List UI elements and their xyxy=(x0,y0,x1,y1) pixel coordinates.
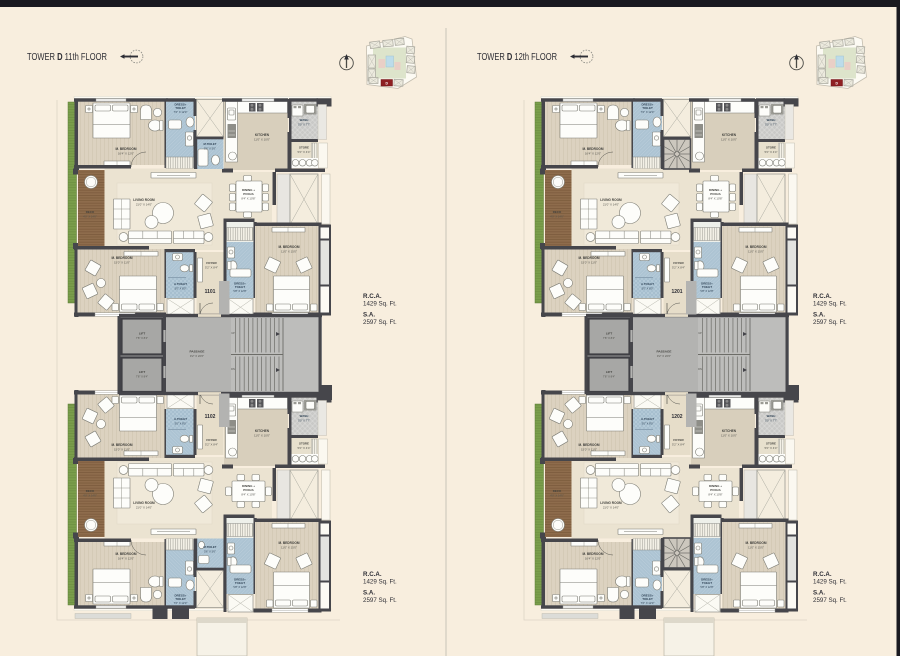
svg-text:M. BEDROOM: M. BEDROOM xyxy=(582,147,603,151)
svg-text:1429 Sq. Ft.: 1429 Sq. Ft. xyxy=(363,579,397,586)
svg-text:STORE: STORE xyxy=(299,146,309,150)
svg-text:LIVING ROOM: LIVING ROOM xyxy=(600,501,622,505)
svg-text:M. BEDROOM: M. BEDROOM xyxy=(111,256,132,260)
svg-text:11'0" X 10'0": 11'0" X 10'0" xyxy=(254,138,270,142)
svg-text:21'0" X 14'0": 21'0" X 14'0" xyxy=(603,203,619,207)
svg-text:5'0" X 4'4": 5'0" X 4'4" xyxy=(764,150,777,154)
svg-text:R.C.A.: R.C.A. xyxy=(363,571,382,578)
svg-text:5'0" X 8'0": 5'0" X 8'0" xyxy=(642,422,654,426)
svg-text:DECK: DECK xyxy=(553,210,562,214)
svg-text:8'4" X 10'8": 8'4" X 10'8" xyxy=(708,196,722,200)
svg-text:A.TOILET: A.TOILET xyxy=(174,417,187,421)
svg-text:7'0" X 12'0": 7'0" X 12'0" xyxy=(174,110,188,114)
svg-text:S.A.: S.A. xyxy=(813,312,825,319)
svg-text:M.TOILET: M.TOILET xyxy=(204,142,217,146)
svg-text:2597 Sq. Ft.: 2597 Sq. Ft. xyxy=(363,597,397,604)
svg-text:DN: DN xyxy=(231,367,235,371)
svg-text:15'0" X 11'0": 15'0" X 11'0" xyxy=(114,261,130,265)
svg-text:FOYER: FOYER xyxy=(206,261,217,265)
svg-text:2597 Sq. Ft.: 2597 Sq. Ft. xyxy=(813,319,847,326)
svg-text:LIFT: LIFT xyxy=(139,332,145,336)
svg-text:M. BEDROOM: M. BEDROOM xyxy=(278,541,299,545)
svg-text:5'0" X 4'4": 5'0" X 4'4" xyxy=(297,150,310,154)
svg-text:LIVING ROOM: LIVING ROOM xyxy=(133,198,155,202)
svg-text:KITCHEN: KITCHEN xyxy=(722,133,737,137)
svg-text:5'0" X 8'0": 5'0" X 8'0" xyxy=(175,422,187,426)
svg-text:M. BEDROOM: M. BEDROOM xyxy=(745,245,766,249)
svg-text:11'0" X 15'0": 11'0" X 15'0" xyxy=(748,250,764,254)
svg-text:S.A.: S.A. xyxy=(813,590,825,597)
svg-text:1102: 1102 xyxy=(205,414,216,420)
svg-text:KITCHEN: KITCHEN xyxy=(255,133,270,137)
svg-text:TOWER D 11th FLOOR: TOWER D 11th FLOOR xyxy=(27,52,107,63)
svg-text:S.A.: S.A. xyxy=(363,590,375,597)
svg-text:FOYER: FOYER xyxy=(673,438,684,442)
svg-text:7'0" X 12'0": 7'0" X 12'0" xyxy=(641,110,655,114)
svg-text:5'0" X 8'0": 5'0" X 8'0" xyxy=(642,287,654,291)
svg-text:5'0" X 8'0": 5'0" X 8'0" xyxy=(175,287,187,291)
svg-text:5'0" X 7'7": 5'0" X 7'7" xyxy=(298,419,310,423)
svg-text:POOJA: POOJA xyxy=(243,192,254,196)
svg-text:8'4" X 10'8": 8'4" X 10'8" xyxy=(241,196,255,200)
svg-text:7'8" X 8'4": 7'8" X 8'4" xyxy=(603,374,615,378)
svg-text:M. BEDROOM: M. BEDROOM xyxy=(745,541,766,545)
svg-text:FOYER: FOYER xyxy=(673,261,684,265)
svg-text:5'0" X 4'4": 5'0" X 4'4" xyxy=(764,446,777,450)
svg-text:STORE: STORE xyxy=(766,146,776,150)
svg-text:9'2" X 20'6": 9'2" X 20'6" xyxy=(190,354,204,358)
svg-text:WASH: WASH xyxy=(300,118,309,122)
svg-text:11'0" X 10'0": 11'0" X 10'0" xyxy=(721,138,737,142)
svg-text:7'0" X 12'0": 7'0" X 12'0" xyxy=(174,601,188,605)
svg-text:A.TOILET: A.TOILET xyxy=(641,282,654,286)
svg-text:FOYER: FOYER xyxy=(206,438,217,442)
svg-text:M. BEDROOM: M. BEDROOM xyxy=(582,552,603,556)
svg-text:21'0" X 14'0": 21'0" X 14'0" xyxy=(603,506,619,510)
svg-text:LIFT: LIFT xyxy=(606,332,612,336)
svg-text:PASSAGE: PASSAGE xyxy=(657,350,672,354)
svg-text:UP: UP xyxy=(231,331,235,335)
svg-text:21'0" X 14'0": 21'0" X 14'0" xyxy=(136,506,152,510)
svg-text:16'4" X 12'0": 16'4" X 12'0" xyxy=(118,557,134,561)
svg-text:KITCHEN: KITCHEN xyxy=(255,429,270,433)
svg-text:15'0" X 11'0": 15'0" X 11'0" xyxy=(581,261,597,265)
svg-text:1429 Sq. Ft.: 1429 Sq. Ft. xyxy=(813,579,847,586)
svg-text:7'0" X 12'0": 7'0" X 12'0" xyxy=(641,601,655,605)
svg-text:R.C.A.: R.C.A. xyxy=(813,293,832,300)
svg-text:DECK: DECK xyxy=(86,210,95,214)
svg-text:16'4" X 12'0": 16'4" X 12'0" xyxy=(585,557,601,561)
svg-text:5'0" X 7'7": 5'0" X 7'7" xyxy=(298,123,310,127)
svg-text:WASH: WASH xyxy=(767,414,776,418)
svg-text:4'0" X 14'0": 4'0" X 14'0" xyxy=(550,215,564,219)
svg-text:UP: UP xyxy=(698,331,702,335)
svg-text:POOJA: POOJA xyxy=(710,488,721,492)
svg-text:A.TOILET: A.TOILET xyxy=(174,282,187,286)
svg-text:7'8" X 8'4": 7'8" X 8'4" xyxy=(136,374,148,378)
svg-text:5'8" X 12'8": 5'8" X 12'8" xyxy=(233,289,246,293)
svg-text:R.C.A.: R.C.A. xyxy=(813,571,832,578)
svg-text:11'0" X 10'0": 11'0" X 10'0" xyxy=(254,434,270,438)
svg-text:LIVING ROOM: LIVING ROOM xyxy=(133,501,155,505)
svg-text:8'4" X 10'8": 8'4" X 10'8" xyxy=(708,492,722,496)
svg-text:1429 Sq. Ft.: 1429 Sq. Ft. xyxy=(813,301,847,308)
svg-text:11'0" X 15'0": 11'0" X 15'0" xyxy=(748,546,764,550)
svg-text:TOILET: TOILET xyxy=(175,597,186,601)
svg-text:5'6" X 5'6": 5'6" X 5'6" xyxy=(204,147,216,151)
svg-text:5'6" X 5'6": 5'6" X 5'6" xyxy=(204,550,216,554)
svg-text:5'0" X 7'7": 5'0" X 7'7" xyxy=(765,123,777,127)
svg-text:TOILET: TOILET xyxy=(702,581,712,585)
svg-text:STORE: STORE xyxy=(766,442,776,446)
svg-text:11'0" X 10'0": 11'0" X 10'0" xyxy=(721,434,737,438)
svg-text:8'4" X 10'8": 8'4" X 10'8" xyxy=(241,492,255,496)
svg-text:4'0" X 14'0": 4'0" X 14'0" xyxy=(83,494,97,498)
svg-text:5'2" X 8'4": 5'2" X 8'4" xyxy=(205,443,218,447)
svg-text:21'0" X 14'0": 21'0" X 14'0" xyxy=(136,203,152,207)
svg-text:M. BEDROOM: M. BEDROOM xyxy=(578,443,599,447)
svg-text:M. BEDROOM: M. BEDROOM xyxy=(111,443,132,447)
svg-text:POOJA: POOJA xyxy=(243,488,254,492)
svg-text:S.A.: S.A. xyxy=(363,312,375,319)
svg-text:TOILET: TOILET xyxy=(642,106,653,110)
svg-text:11'0" X 15'0": 11'0" X 15'0" xyxy=(281,546,297,550)
svg-text:9'2" X 20'6": 9'2" X 20'6" xyxy=(657,354,671,358)
svg-text:1201: 1201 xyxy=(671,289,682,295)
svg-text:M. BEDROOM: M. BEDROOM xyxy=(115,552,136,556)
svg-text:1202: 1202 xyxy=(671,414,682,420)
svg-text:5'0" X 7'7": 5'0" X 7'7" xyxy=(765,419,777,423)
svg-text:WASH: WASH xyxy=(767,118,776,122)
svg-text:KITCHEN: KITCHEN xyxy=(722,429,737,433)
svg-text:DECK: DECK xyxy=(86,489,95,493)
svg-text:M.TOILET: M.TOILET xyxy=(204,545,217,549)
svg-text:R.C.A.: R.C.A. xyxy=(363,293,382,300)
svg-text:2597 Sq. Ft.: 2597 Sq. Ft. xyxy=(363,319,397,326)
svg-text:A.TOILET: A.TOILET xyxy=(641,417,654,421)
svg-text:16'4" X 12'0": 16'4" X 12'0" xyxy=(118,152,134,156)
svg-text:M. BEDROOM: M. BEDROOM xyxy=(115,147,136,151)
svg-text:TOILET: TOILET xyxy=(175,106,186,110)
svg-text:2597 Sq. Ft.: 2597 Sq. Ft. xyxy=(813,597,847,604)
svg-text:5'2" X 8'4": 5'2" X 8'4" xyxy=(672,443,685,447)
svg-text:5'8" X 12'8": 5'8" X 12'8" xyxy=(700,585,713,589)
svg-text:15'0" X 11'0": 15'0" X 11'0" xyxy=(581,448,597,452)
svg-text:4'0" X 14'0": 4'0" X 14'0" xyxy=(550,494,564,498)
svg-text:5'2" X 8'4": 5'2" X 8'4" xyxy=(672,266,685,270)
svg-text:LIFT: LIFT xyxy=(139,370,145,374)
svg-text:7'8" X 8'4": 7'8" X 8'4" xyxy=(136,336,148,340)
svg-text:TOILET: TOILET xyxy=(642,597,653,601)
svg-text:LIVING ROOM: LIVING ROOM xyxy=(600,198,622,202)
svg-text:5'8" X 12'8": 5'8" X 12'8" xyxy=(700,289,713,293)
svg-text:16'4" X 12'0": 16'4" X 12'0" xyxy=(585,152,601,156)
svg-text:1101: 1101 xyxy=(205,289,216,295)
svg-text:STORE: STORE xyxy=(299,442,309,446)
svg-text:5'2" X 8'4": 5'2" X 8'4" xyxy=(205,266,218,270)
svg-text:POOJA: POOJA xyxy=(710,192,721,196)
svg-text:DECK: DECK xyxy=(553,489,562,493)
svg-text:PASSAGE: PASSAGE xyxy=(190,350,205,354)
svg-text:TOILET: TOILET xyxy=(235,285,245,289)
svg-text:M. BEDROOM: M. BEDROOM xyxy=(578,256,599,260)
svg-text:WASH: WASH xyxy=(300,414,309,418)
svg-text:TOILET: TOILET xyxy=(235,581,245,585)
svg-text:TOWER D 12th FLOOR: TOWER D 12th FLOOR xyxy=(477,52,557,63)
svg-text:15'0" X 11'0": 15'0" X 11'0" xyxy=(114,448,130,452)
svg-text:7'8" X 8'4": 7'8" X 8'4" xyxy=(603,336,615,340)
svg-text:DN: DN xyxy=(698,367,702,371)
svg-text:LIFT: LIFT xyxy=(606,370,612,374)
svg-text:M. BEDROOM: M. BEDROOM xyxy=(278,245,299,249)
svg-text:11'0" X 15'0": 11'0" X 15'0" xyxy=(281,250,297,254)
svg-text:TOILET: TOILET xyxy=(702,285,712,289)
svg-text:1429 Sq. Ft.: 1429 Sq. Ft. xyxy=(363,301,397,308)
svg-text:4'0" X 14'0": 4'0" X 14'0" xyxy=(83,215,97,219)
svg-text:5'0" X 4'4": 5'0" X 4'4" xyxy=(297,446,310,450)
svg-text:5'8" X 12'8": 5'8" X 12'8" xyxy=(233,585,246,589)
